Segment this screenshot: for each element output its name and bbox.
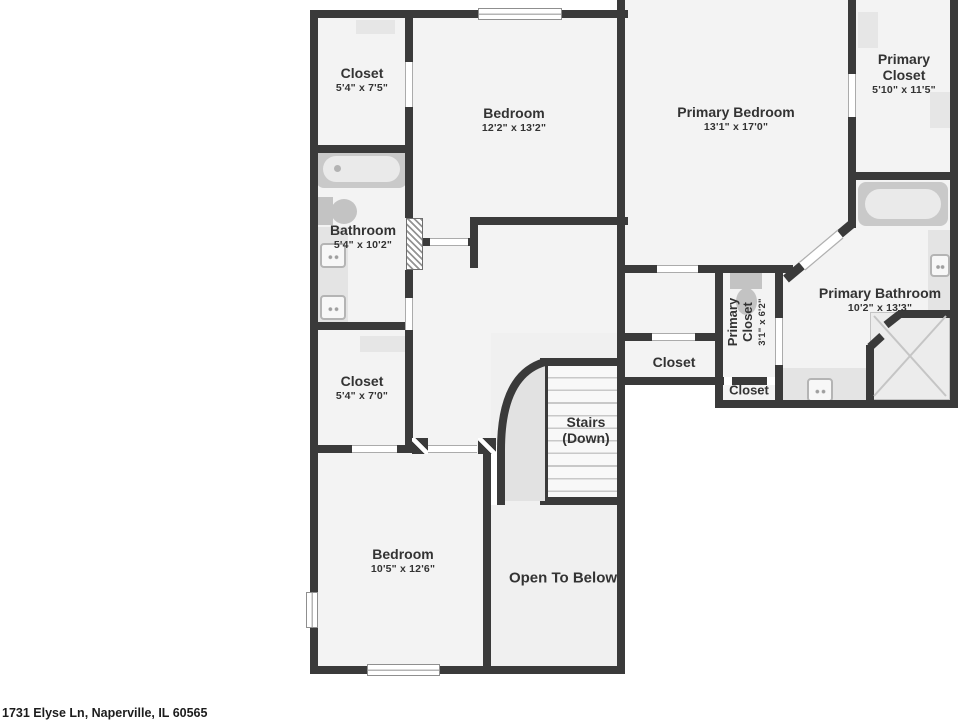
room-dims: 10'5" x 12'6" bbox=[371, 563, 435, 576]
wall bbox=[310, 445, 352, 453]
room-sub: (Down) bbox=[562, 430, 609, 446]
room-dims: 12'2" x 13'2" bbox=[482, 122, 546, 135]
closet-shelf bbox=[356, 20, 395, 34]
toilet-icon bbox=[730, 273, 762, 289]
door-opening bbox=[848, 74, 856, 117]
closet-shelf bbox=[930, 92, 950, 128]
room-label-open-to-below: Open To Below bbox=[509, 569, 617, 586]
wall bbox=[695, 333, 723, 341]
room-dims: 5'10" x 11'5" bbox=[864, 84, 944, 97]
floor-plan: Closet 5'4" x 7'5" Bedroom 12'2" x 13'2"… bbox=[0, 0, 960, 720]
wall bbox=[468, 238, 478, 246]
door-jamb bbox=[478, 438, 496, 454]
room-dims: 5'4" x 7'5" bbox=[336, 82, 388, 95]
door-opening bbox=[405, 298, 413, 330]
window bbox=[478, 8, 562, 20]
wall bbox=[470, 217, 628, 225]
room-label-primary-bathroom: Primary Bathroom 10'2" x 13'3" bbox=[819, 285, 941, 315]
room-name: Bathroom bbox=[330, 222, 396, 238]
room-label-primary-bedroom: Primary Bedroom 13'1" x 17'0" bbox=[677, 104, 794, 134]
room-name: Closet bbox=[729, 384, 769, 399]
door-opening bbox=[405, 62, 413, 107]
room-label-bedroom-bottom: Bedroom 10'5" x 12'6" bbox=[371, 546, 435, 576]
room-name: Closet bbox=[336, 65, 388, 81]
room-name: Primary Bathroom bbox=[819, 285, 941, 301]
wall bbox=[715, 400, 958, 408]
wall bbox=[625, 333, 652, 341]
outside-patch bbox=[625, 385, 715, 408]
wall bbox=[950, 0, 958, 408]
room-label-closet-small: Closet bbox=[729, 384, 769, 399]
room-label-closet-bottom-left: Closet 5'4" x 7'0" bbox=[336, 373, 388, 403]
wall bbox=[540, 358, 548, 505]
room-dims: 3'1" x 6'2" bbox=[757, 294, 768, 350]
wall bbox=[405, 10, 413, 62]
shower-icon bbox=[870, 312, 950, 400]
wall bbox=[866, 345, 874, 400]
wall bbox=[848, 0, 856, 74]
door-opening bbox=[428, 445, 477, 453]
room-name: Closet bbox=[336, 373, 388, 389]
wall bbox=[848, 117, 856, 180]
room-dims: 10'2" x 13'3" bbox=[819, 302, 941, 315]
room-dims: 13'1" x 17'0" bbox=[677, 121, 794, 134]
sink-icon bbox=[320, 295, 346, 320]
wall bbox=[310, 10, 318, 453]
sink-icon bbox=[930, 254, 950, 277]
room-dims: 5'4" x 7'0" bbox=[336, 390, 388, 403]
wall bbox=[497, 450, 505, 505]
room-label-primary-closet: Primary Closet 5'10" x 11'5" bbox=[864, 51, 944, 97]
door-jamb bbox=[412, 438, 428, 454]
room-name: Bedroom bbox=[371, 546, 435, 562]
wall bbox=[310, 666, 367, 674]
room-label-stairs: Stairs (Down) bbox=[562, 414, 609, 446]
door-hatch bbox=[406, 218, 423, 270]
wall bbox=[617, 0, 625, 674]
wall bbox=[483, 453, 491, 674]
property-address: 1731 Elyse Ln, Naperville, IL 60565 bbox=[2, 706, 207, 720]
room-name: Open To Below bbox=[509, 569, 617, 586]
door-opening bbox=[652, 333, 695, 341]
room-label-closet-middle: Closet bbox=[653, 354, 696, 370]
wall bbox=[491, 666, 625, 674]
wall bbox=[310, 145, 413, 153]
wall bbox=[405, 107, 413, 218]
closet-shelf bbox=[360, 336, 407, 352]
door-opening bbox=[430, 238, 468, 246]
room-label-primary-closet-wc: Primary Closet 3'1" x 6'2" bbox=[726, 294, 768, 350]
bathtub-drain bbox=[334, 165, 341, 172]
room-name: Bedroom bbox=[482, 105, 546, 121]
wall bbox=[405, 330, 413, 453]
room-dims: 5'4" x 10'2" bbox=[330, 239, 396, 252]
room-label-bathroom: Bathroom 5'4" x 10'2" bbox=[330, 222, 396, 252]
sink-icon bbox=[807, 378, 833, 402]
door-opening bbox=[775, 318, 783, 365]
door-opening bbox=[657, 265, 698, 273]
room-name: Stairs bbox=[562, 414, 609, 430]
wall bbox=[540, 497, 625, 505]
room-label-bedroom-top: Bedroom 12'2" x 13'2" bbox=[482, 105, 546, 135]
wall bbox=[848, 180, 856, 228]
room-name: Primary Bedroom bbox=[677, 104, 794, 120]
room-label-closet-top-left: Closet 5'4" x 7'5" bbox=[336, 65, 388, 95]
room-name: Primary Closet bbox=[726, 294, 756, 350]
closet-shelf bbox=[858, 12, 878, 48]
bathtub-basin bbox=[865, 189, 941, 219]
room-name: Primary Closet bbox=[864, 51, 944, 83]
wall bbox=[775, 265, 783, 318]
wall bbox=[848, 172, 958, 180]
wall bbox=[397, 445, 412, 453]
toilet-bowl bbox=[331, 199, 357, 224]
room-name: Closet bbox=[653, 354, 696, 370]
wall bbox=[405, 270, 413, 298]
window bbox=[306, 592, 318, 628]
wall bbox=[625, 265, 657, 273]
window bbox=[367, 664, 440, 676]
wall bbox=[310, 322, 413, 330]
door-opening bbox=[352, 445, 397, 453]
wall bbox=[548, 358, 617, 366]
wall bbox=[310, 10, 478, 18]
wall bbox=[310, 453, 318, 592]
